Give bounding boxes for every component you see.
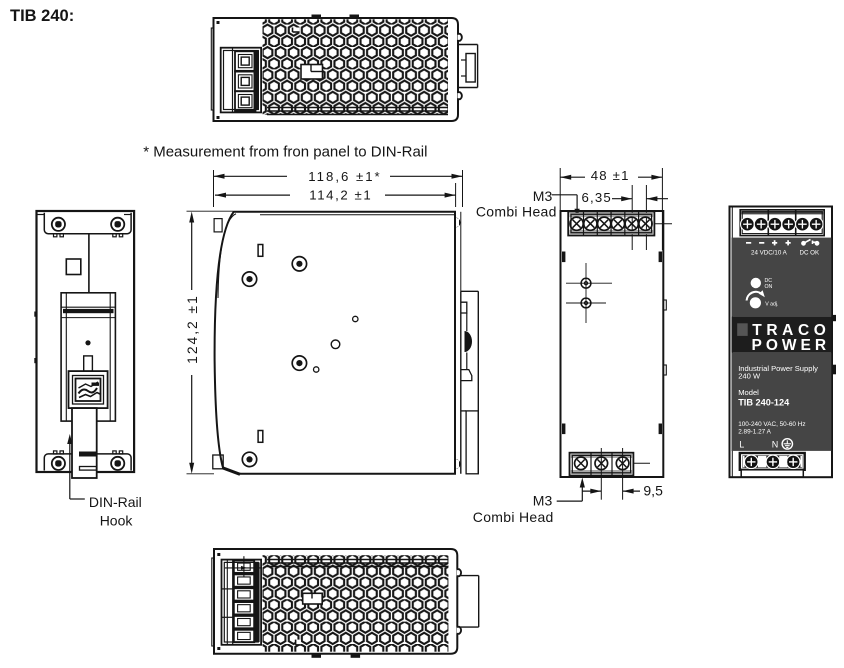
svg-text:* Measurement from fron panel: * Measurement from fron panel to DIN-Rai… — [143, 143, 427, 160]
svg-text:Model: Model — [738, 388, 759, 397]
svg-text:Combi Head: Combi Head — [476, 204, 557, 220]
svg-text:V adj.: V adj. — [765, 302, 778, 308]
svg-text:M3: M3 — [533, 493, 553, 509]
svg-text:24 VDC/10 A: 24 VDC/10 A — [751, 250, 788, 257]
svg-text:TIB 240:: TIB 240: — [10, 7, 74, 25]
svg-text:2.89-1.27 A: 2.89-1.27 A — [738, 428, 771, 435]
svg-text:TIB 240-124: TIB 240-124 — [738, 397, 790, 407]
svg-text:240 W: 240 W — [738, 371, 761, 380]
svg-text:Hook: Hook — [100, 513, 134, 529]
svg-text:118,6 ±1*: 118,6 ±1* — [308, 169, 381, 184]
svg-text:124,2 ±1: 124,2 ±1 — [185, 294, 200, 364]
svg-text:6,35: 6,35 — [582, 190, 612, 205]
svg-text:N: N — [772, 440, 779, 450]
svg-text:Combi Head: Combi Head — [473, 509, 554, 525]
svg-text:114,2 ±1: 114,2 ±1 — [309, 187, 372, 202]
svg-text:ON: ON — [765, 284, 773, 290]
svg-text:L: L — [739, 440, 744, 450]
svg-text:POWER: POWER — [752, 337, 831, 354]
svg-text:9,5: 9,5 — [643, 483, 663, 499]
svg-text:DIN-Rail: DIN-Rail — [89, 494, 142, 510]
svg-text:48 ±1: 48 ±1 — [591, 168, 630, 183]
svg-text:100-240 VAC, 50-60 Hz: 100-240 VAC, 50-60 Hz — [738, 421, 805, 428]
svg-text:M3: M3 — [533, 188, 553, 204]
svg-text:DC OK: DC OK — [800, 250, 820, 257]
